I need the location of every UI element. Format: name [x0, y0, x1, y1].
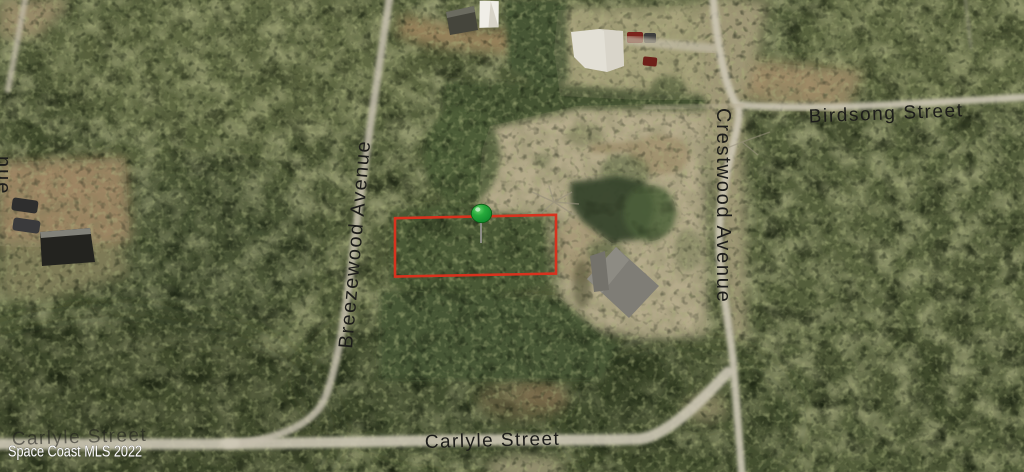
svg-text:Crestwood Avenue: Crestwood Avenue [712, 108, 734, 304]
svg-text:Carlyle Street: Carlyle Street [425, 429, 561, 453]
svg-text:nue: nue [0, 156, 14, 195]
svg-text:Space Coast MLS 2022: Space Coast MLS 2022 [8, 443, 142, 460]
